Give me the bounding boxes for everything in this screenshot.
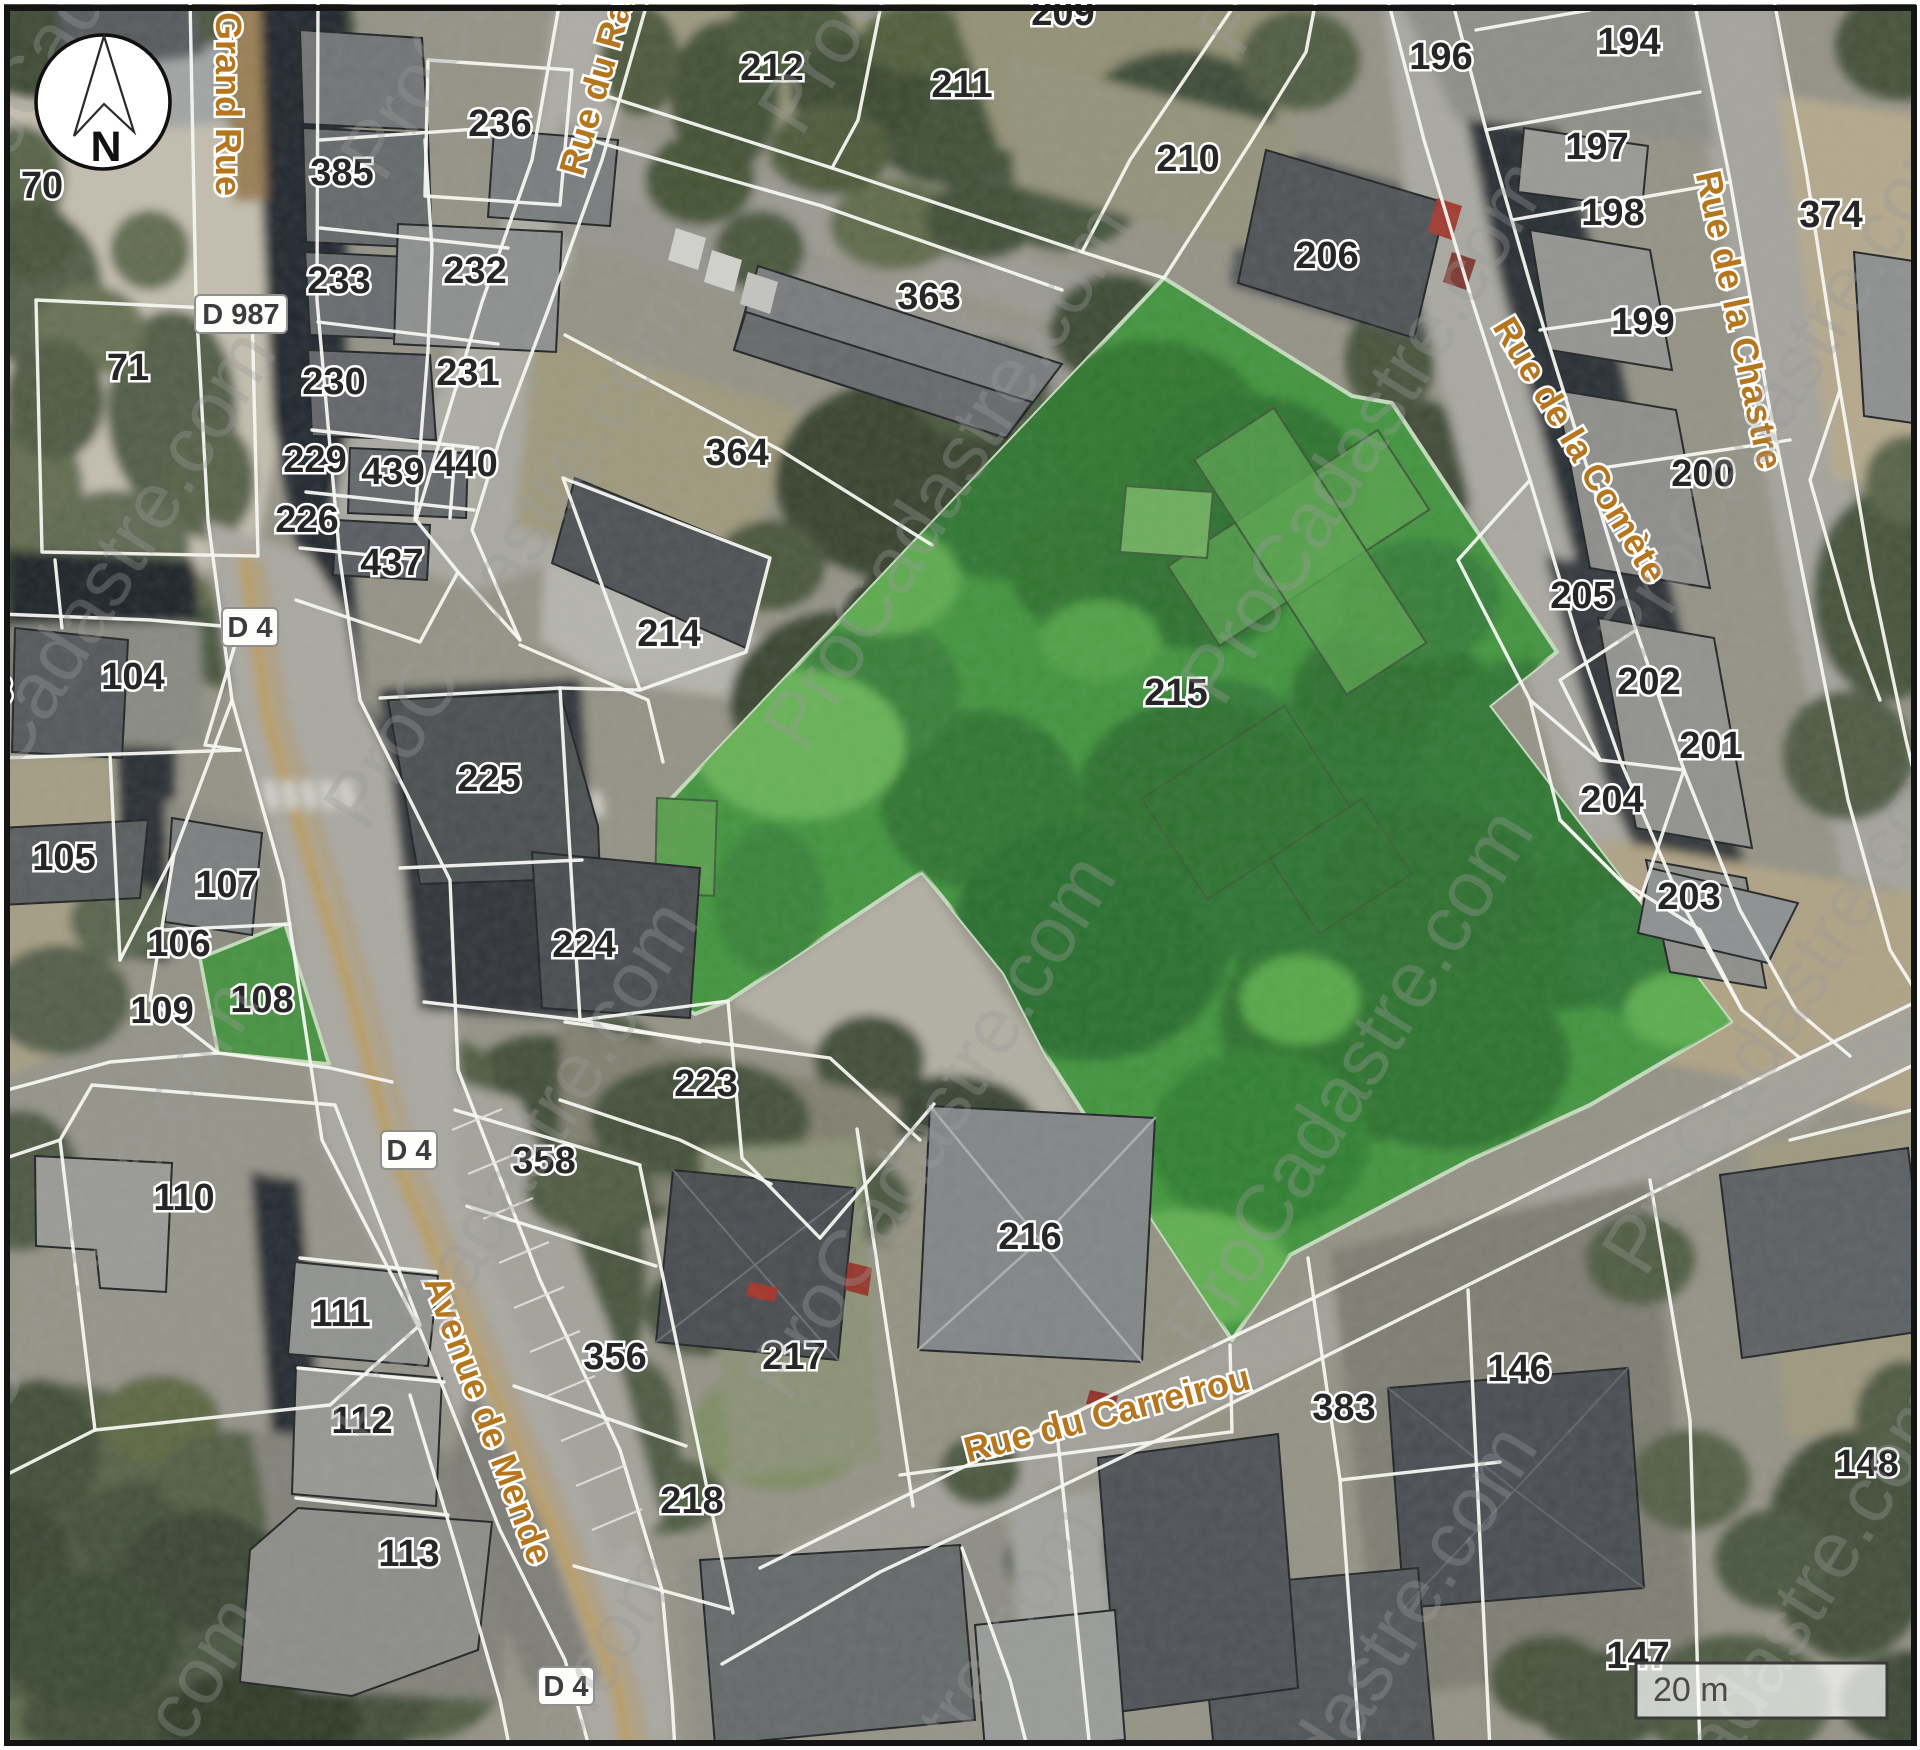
- svg-text:236: 236: [468, 103, 531, 145]
- svg-text:194: 194: [1597, 21, 1660, 63]
- svg-text:210: 210: [1156, 138, 1219, 180]
- svg-text:206: 206: [1295, 235, 1358, 277]
- svg-text:364: 364: [705, 432, 768, 474]
- svg-text:232: 232: [443, 250, 506, 292]
- svg-text:N: N: [90, 123, 121, 171]
- svg-text:146: 146: [1487, 1348, 1550, 1390]
- svg-text:104: 104: [101, 656, 164, 698]
- svg-text:D 4: D 4: [386, 1135, 431, 1167]
- svg-text:113: 113: [378, 1533, 439, 1575]
- svg-text:383: 383: [1312, 1387, 1375, 1429]
- svg-text:229: 229: [283, 439, 346, 481]
- svg-text:230: 230: [302, 361, 365, 403]
- svg-text:Grand Rue: Grand Rue: [208, 12, 249, 196]
- svg-text:231: 231: [436, 352, 499, 394]
- svg-text:204: 204: [1580, 779, 1643, 821]
- svg-text:218: 218: [660, 1480, 723, 1522]
- svg-text:107: 107: [195, 864, 258, 906]
- svg-text:199: 199: [1611, 301, 1674, 343]
- svg-text:197: 197: [1565, 126, 1628, 168]
- svg-text:105: 105: [32, 837, 95, 879]
- svg-text:225: 225: [457, 758, 520, 800]
- svg-text:440: 440: [434, 443, 497, 485]
- svg-text:201: 201: [1679, 725, 1742, 767]
- svg-text:196: 196: [1409, 36, 1472, 78]
- svg-text:20 m: 20 m: [1653, 1671, 1729, 1709]
- svg-text:356: 356: [583, 1336, 646, 1378]
- svg-text:71: 71: [107, 347, 149, 389]
- svg-text:214: 214: [637, 613, 700, 655]
- svg-text:437: 437: [360, 542, 423, 584]
- svg-text:106: 106: [147, 923, 210, 965]
- svg-text:70: 70: [21, 165, 63, 207]
- svg-text:223: 223: [674, 1063, 737, 1105]
- svg-text:198: 198: [1581, 192, 1644, 234]
- svg-text:203: 203: [1657, 876, 1720, 918]
- svg-text:233: 233: [307, 260, 370, 302]
- svg-text:211: 211: [931, 64, 992, 106]
- svg-text:363: 363: [897, 276, 960, 318]
- svg-text:D 4: D 4: [227, 612, 272, 644]
- svg-text:216: 216: [998, 1216, 1061, 1258]
- svg-text:439: 439: [361, 451, 424, 493]
- svg-text:226: 226: [275, 499, 338, 541]
